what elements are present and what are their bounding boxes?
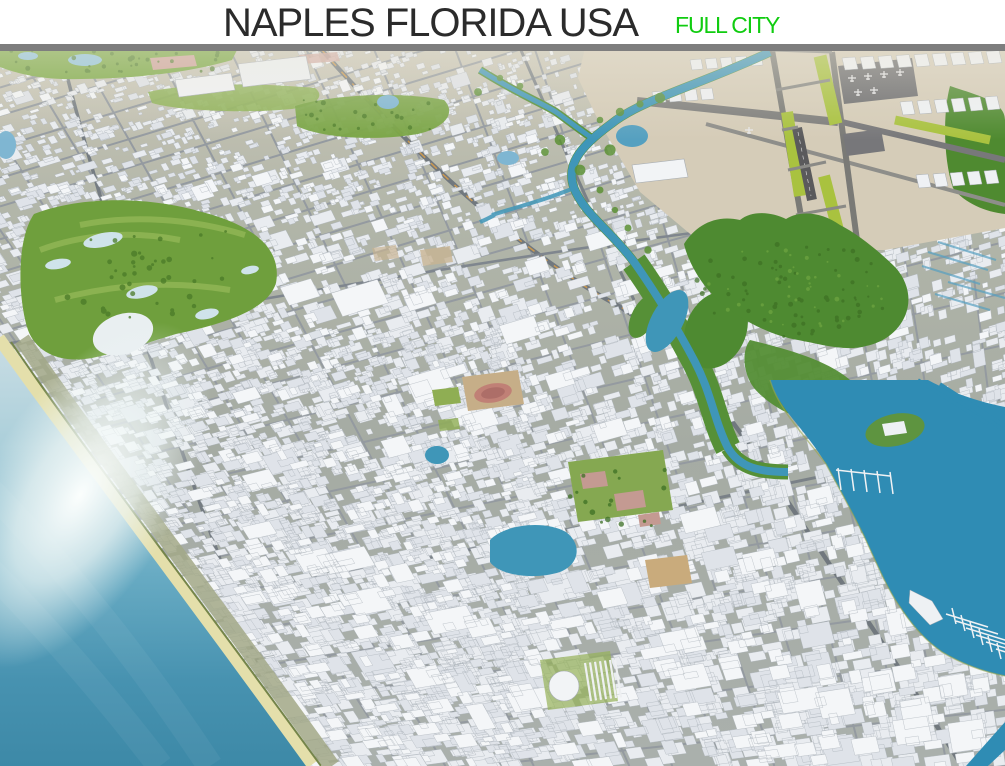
svg-text:FULL CITY: FULL CITY [675, 12, 780, 38]
svg-text:NAPLES FLORIDA USA: NAPLES FLORIDA USA [223, 1, 639, 45]
